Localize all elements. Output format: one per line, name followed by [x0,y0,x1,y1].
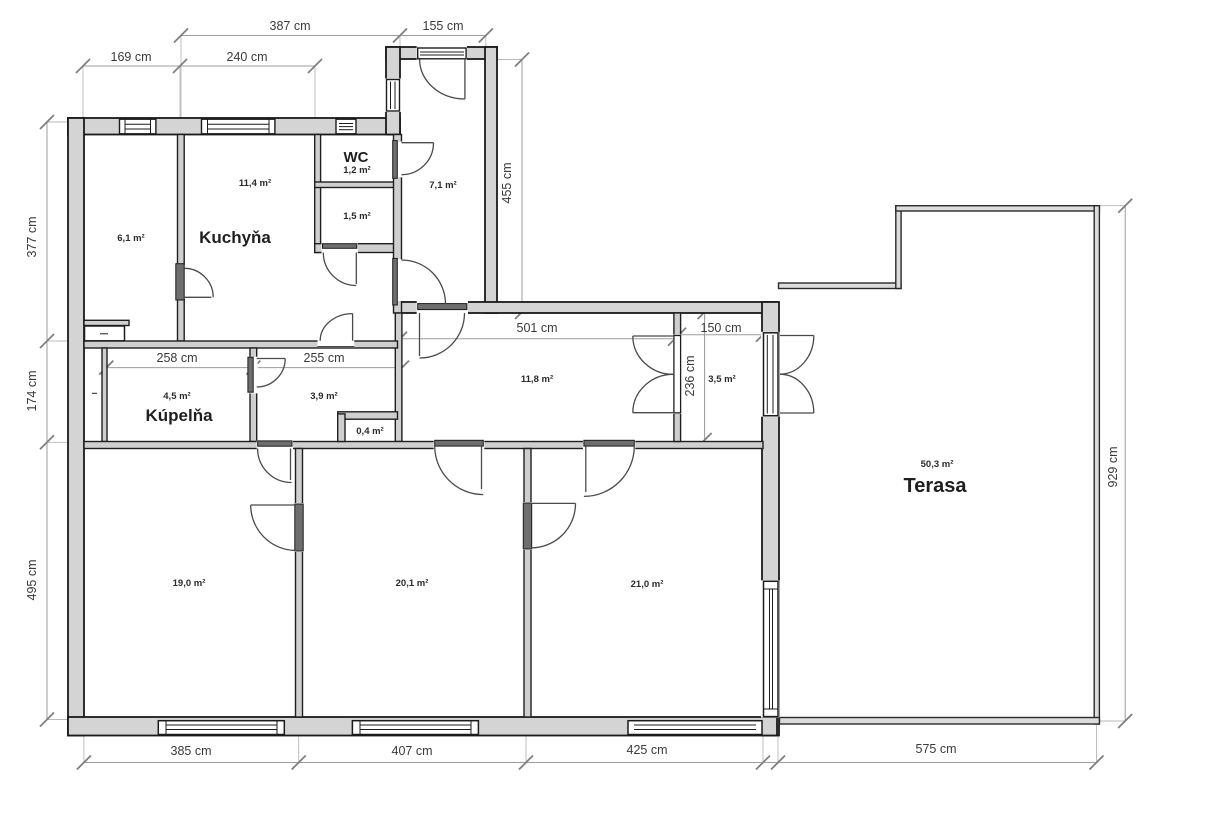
svg-text:3,5 m²: 3,5 m² [708,374,735,385]
svg-text:455 cm: 455 cm [500,163,514,204]
svg-text:4,5 m²: 4,5 m² [163,391,190,402]
svg-text:240 cm: 240 cm [227,50,268,64]
svg-text:575 cm: 575 cm [916,742,957,756]
svg-text:1,2 m²: 1,2 m² [343,165,370,176]
svg-text:3,9 m²: 3,9 m² [310,391,337,402]
svg-text:425 cm: 425 cm [627,743,668,757]
svg-text:377 cm: 377 cm [25,217,39,258]
svg-text:11,8 m²: 11,8 m² [521,374,553,385]
svg-text:495 cm: 495 cm [25,560,39,601]
svg-text:385 cm: 385 cm [171,744,212,758]
svg-text:258 cm: 258 cm [157,351,198,365]
svg-text:174 cm: 174 cm [25,371,39,412]
svg-text:7,1 m²: 7,1 m² [429,180,456,191]
svg-text:Kuchyňa: Kuchyňa [199,228,271,247]
svg-text:169 cm: 169 cm [111,50,152,64]
svg-text:929 cm: 929 cm [1106,447,1120,488]
svg-text:Kúpelňa: Kúpelňa [145,406,213,425]
svg-text:19,0 m²: 19,0 m² [173,578,206,589]
svg-text:1,5 m²: 1,5 m² [343,211,370,222]
svg-text:20,1 m²: 20,1 m² [396,578,429,589]
svg-text:501 cm: 501 cm [517,321,558,335]
svg-text:0,4 m²: 0,4 m² [356,426,383,437]
svg-text:50,3 m²: 50,3 m² [921,459,954,470]
svg-text:150 cm: 150 cm [701,321,742,335]
svg-text:21,0 m²: 21,0 m² [631,579,664,590]
svg-text:6,1 m²: 6,1 m² [117,233,144,244]
svg-text:11,4 m²: 11,4 m² [239,178,271,189]
svg-text:Terasa: Terasa [903,475,967,497]
svg-text:255 cm: 255 cm [304,351,345,365]
svg-text:407 cm: 407 cm [392,744,433,758]
svg-text:WC: WC [344,149,369,166]
svg-text:236 cm: 236 cm [683,356,697,397]
svg-text:155 cm: 155 cm [423,19,464,33]
svg-text:387 cm: 387 cm [270,19,311,33]
